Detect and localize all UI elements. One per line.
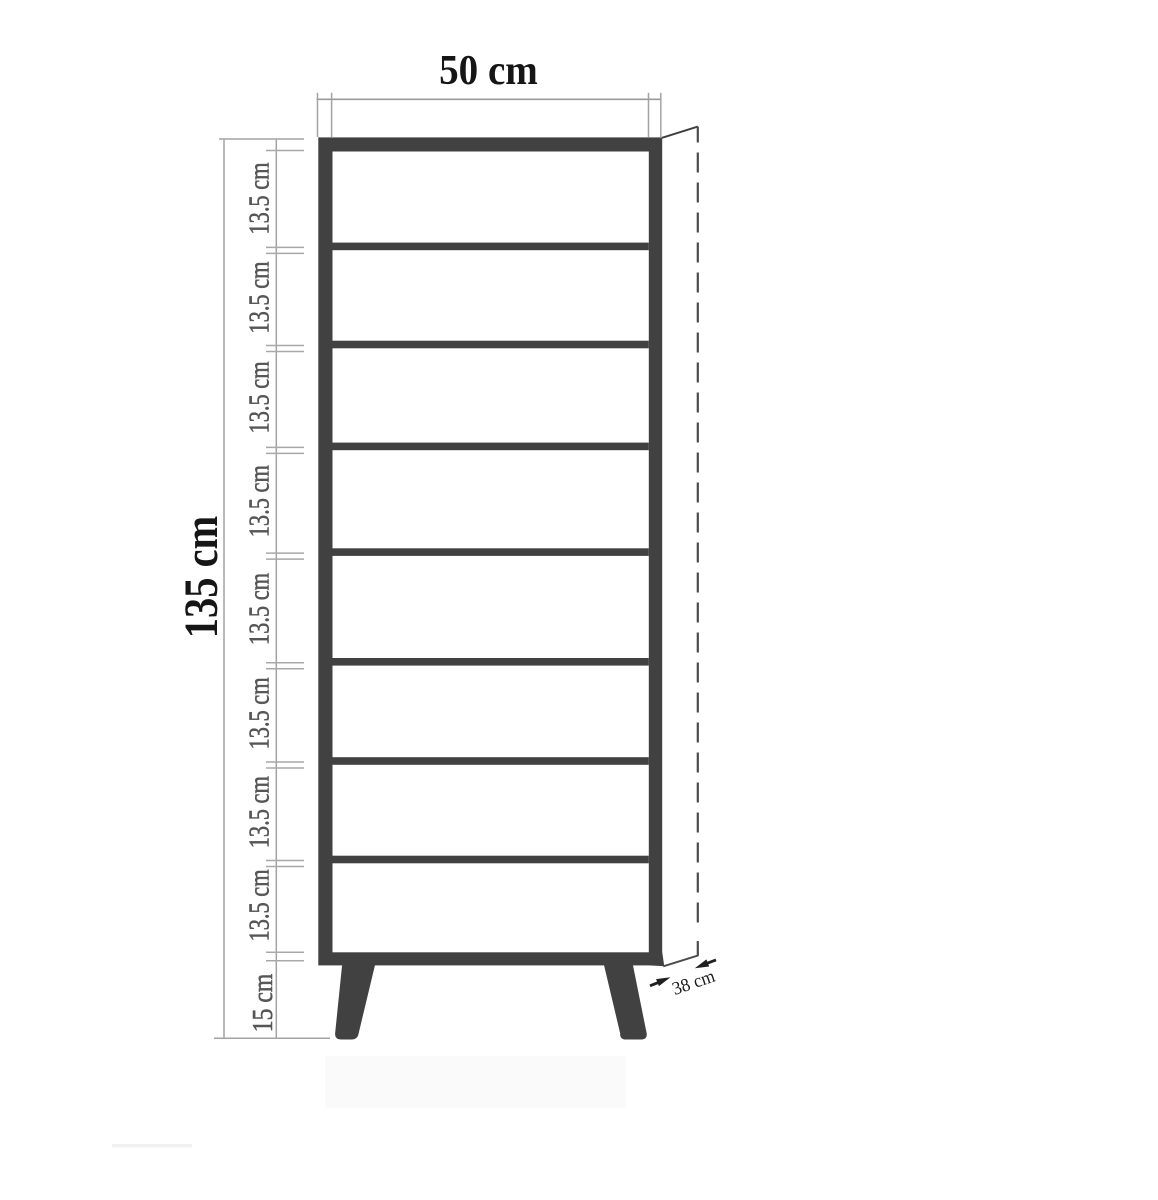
svg-text:13.5 cm: 13.5 cm (244, 261, 275, 333)
svg-text:13.5 cm: 13.5 cm (244, 162, 275, 234)
svg-text:13.5 cm: 13.5 cm (244, 776, 275, 848)
svg-text:13.5 cm: 13.5 cm (244, 869, 275, 941)
svg-text:50 cm: 50 cm (439, 47, 538, 94)
svg-text:13.5 cm: 13.5 cm (244, 361, 275, 433)
svg-text:13.5 cm: 13.5 cm (244, 465, 275, 537)
svg-text:135 cm: 135 cm (174, 516, 228, 638)
svg-text:13.5 cm: 13.5 cm (244, 677, 275, 749)
svg-text:13.5 cm: 13.5 cm (244, 573, 275, 645)
svg-text:15 cm: 15 cm (247, 974, 278, 1032)
